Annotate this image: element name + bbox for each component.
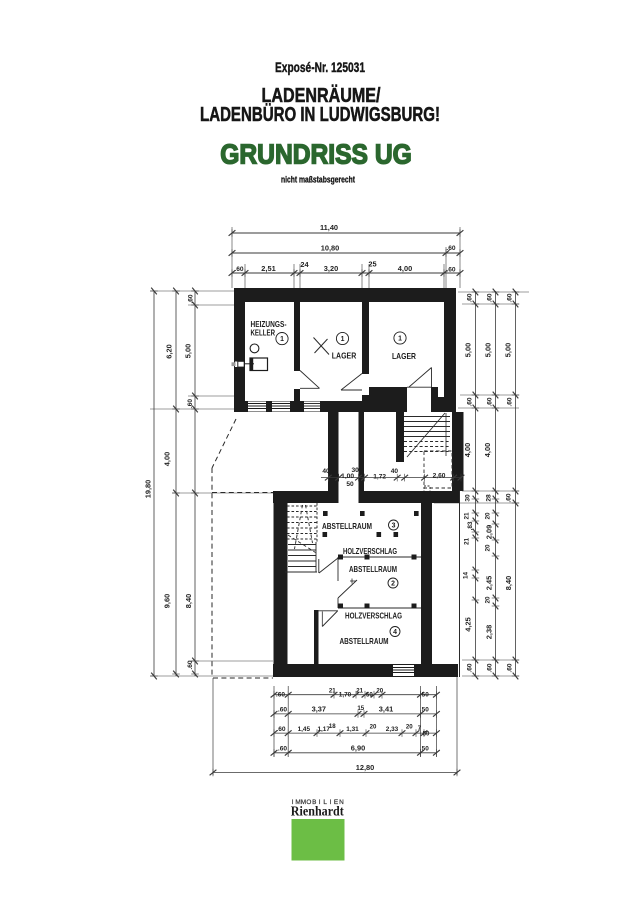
svg-text:30: 30 [465,494,472,502]
svg-text:.60: .60 [467,397,474,406]
svg-text:20: 20 [370,724,377,731]
svg-text:3,20: 3,20 [324,264,338,273]
svg-text:12,80: 12,80 [356,763,375,772]
svg-text:14: 14 [463,572,470,580]
svg-text:.60: .60 [278,707,287,714]
svg-text:6,20: 6,20 [165,344,174,358]
svg-text:4,00: 4,00 [398,264,412,273]
svg-text:1,00: 1,00 [341,473,354,480]
svg-text:LAGER: LAGER [332,351,357,361]
svg-text:3: 3 [392,522,396,529]
svg-text:20: 20 [406,724,413,731]
svg-text:2: 2 [391,580,395,587]
svg-text:.60: .60 [507,293,514,302]
svg-text:ABSTELLRAUM: ABSTELLRAUM [349,564,397,574]
svg-text:50: 50 [366,692,373,699]
svg-text:50: 50 [346,481,354,488]
svg-text:.60: .60 [278,746,287,753]
svg-text:1: 1 [341,336,345,343]
svg-text:.60: .60 [506,493,513,502]
svg-text:HOLZVERSCHLAG: HOLZVERSCHLAG [343,547,397,556]
svg-text:.60: .60 [188,294,195,303]
svg-text:40: 40 [391,468,399,475]
svg-text:4: 4 [393,629,397,636]
svg-text:1,45: 1,45 [298,726,311,733]
svg-text:4,00: 4,00 [463,443,472,457]
svg-text:LADENBÜRO IN LUDWIGSBURG!: LADENBÜRO IN LUDWIGSBURG! [200,103,440,126]
svg-text:2,33: 2,33 [386,726,399,733]
svg-text:.60: .60 [276,726,285,733]
svg-text:ABSTELLRAUM: ABSTELLRAUM [340,636,389,646]
svg-text:1,72: 1,72 [373,474,386,481]
svg-text:,83: ,83 [467,521,474,530]
svg-text:1: 1 [280,336,284,343]
svg-text:1,70: 1,70 [339,692,352,699]
svg-text:50: 50 [422,707,430,714]
svg-text:.60: .60 [487,663,494,672]
svg-text:25: 25 [368,260,376,269]
svg-text:3,41: 3,41 [379,705,393,714]
svg-text:.60: .60 [234,266,243,273]
svg-text:5,00: 5,00 [484,343,493,357]
svg-text:1,31: 1,31 [346,726,359,733]
svg-text:18: 18 [329,723,336,730]
svg-text:3,37: 3,37 [312,705,326,714]
svg-text:2,51: 2,51 [261,264,275,273]
svg-text:2,60: 2,60 [433,472,446,479]
svg-text:nicht maßstabsgerecht: nicht maßstabsgerecht [281,175,355,185]
svg-text:HOLZVERSCHLAG: HOLZVERSCHLAG [345,612,402,621]
svg-text:21: 21 [464,538,471,546]
svg-text:.60: .60 [467,293,474,302]
svg-text:LAGER: LAGER [392,351,416,361]
svg-text:KELLER: KELLER [251,328,276,338]
svg-text:30: 30 [352,467,360,474]
svg-text:2,09: 2,09 [485,525,494,539]
svg-text:28: 28 [486,494,493,502]
svg-text:9,60: 9,60 [163,594,172,608]
svg-text:2,38: 2,38 [485,625,494,639]
svg-text:.60: .60 [446,245,455,252]
svg-text:.60: .60 [276,692,285,699]
svg-text:20: 20 [376,688,383,695]
svg-text:.60: .60 [446,267,455,274]
svg-text:21: 21 [464,512,471,520]
svg-text:50: 50 [423,731,430,738]
svg-text:.60: .60 [487,293,494,302]
svg-text:4,00: 4,00 [163,452,172,466]
svg-text:6,90: 6,90 [351,744,365,753]
svg-text:ABSTELLRAUM: ABSTELLRAUM [322,521,372,531]
svg-text:.60: .60 [187,399,194,408]
svg-text:15: 15 [357,705,364,712]
svg-text:.60: .60 [487,397,494,406]
svg-text:8,40: 8,40 [504,576,513,590]
svg-text:.60: .60 [507,663,514,672]
svg-text:21: 21 [356,688,363,695]
svg-text:24: 24 [300,260,309,269]
svg-text:40: 40 [322,468,330,475]
svg-text:Exposé-Nr. 125031: Exposé-Nr. 125031 [275,60,365,75]
svg-text:7: 7 [418,725,422,732]
svg-text:50: 50 [422,692,430,699]
svg-text:4,25: 4,25 [464,617,473,631]
svg-text:20: 20 [485,544,492,552]
svg-text:20: 20 [485,512,492,520]
svg-text:5,00: 5,00 [504,343,513,357]
svg-text:2,45: 2,45 [485,576,494,590]
svg-text:.60: .60 [467,663,474,672]
svg-text:1: 1 [398,335,402,342]
svg-text:GRUNDRISS UG: GRUNDRISS UG [220,139,412,170]
svg-text:.60: .60 [507,397,514,406]
svg-text:21: 21 [329,688,336,695]
svg-text:11,40: 11,40 [320,223,338,232]
svg-text:10,80: 10,80 [321,244,340,253]
svg-text:Rienhardt: Rienhardt [291,805,344,820]
svg-text:8,40: 8,40 [184,594,193,608]
svg-text:19,80: 19,80 [144,480,153,499]
svg-text:5,00: 5,00 [184,344,193,358]
svg-text:50: 50 [422,746,430,753]
svg-text:20: 20 [485,596,492,604]
svg-text:4,00: 4,00 [483,443,492,457]
svg-text:.60: .60 [187,660,194,669]
svg-text:5,00: 5,00 [464,343,473,357]
